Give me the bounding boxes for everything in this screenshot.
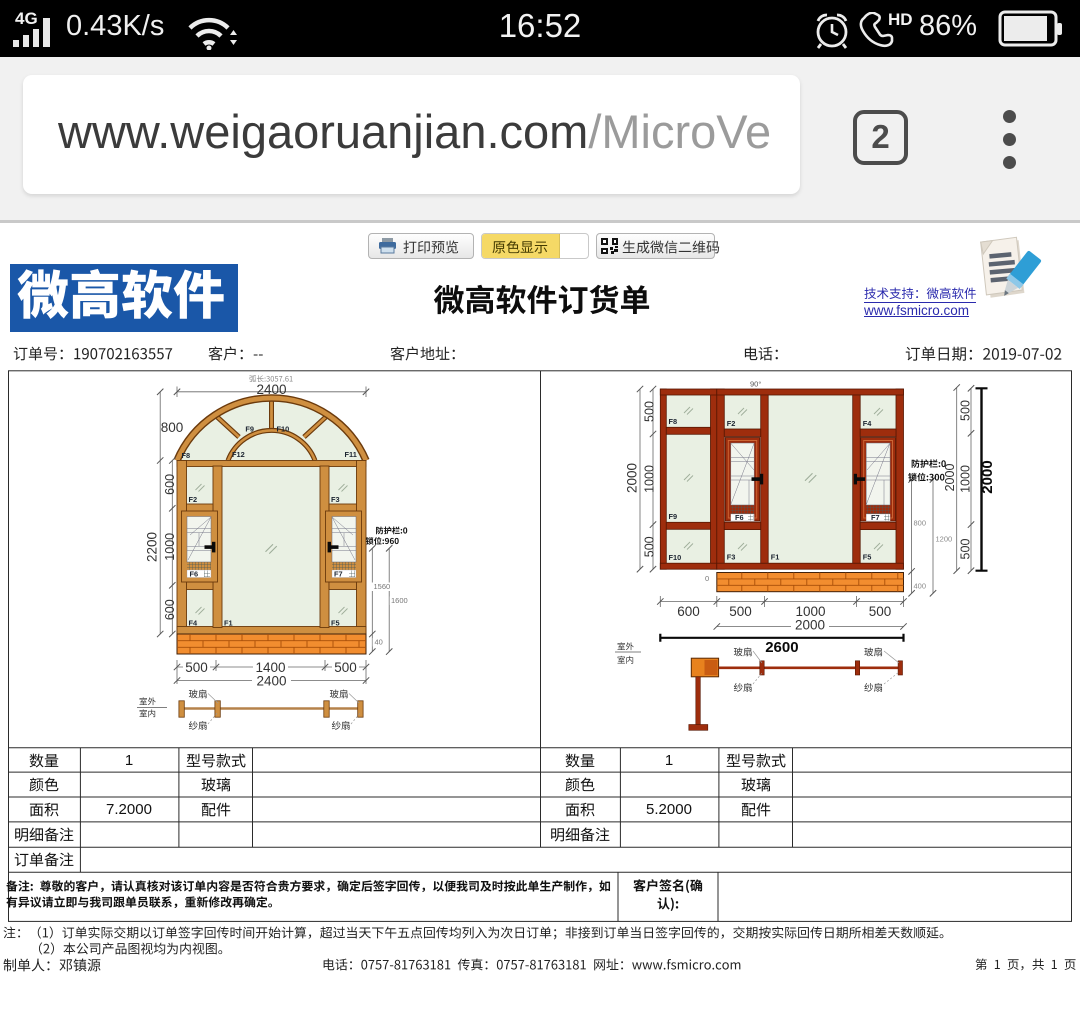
svg-text:F5: F5 bbox=[331, 619, 340, 628]
svg-text:600: 600 bbox=[163, 599, 177, 620]
svg-text:F1: F1 bbox=[771, 553, 780, 562]
svg-text:2000: 2000 bbox=[795, 618, 825, 633]
svg-text:800: 800 bbox=[914, 519, 927, 528]
svg-text:F7: F7 bbox=[334, 569, 343, 578]
svg-text:800: 800 bbox=[161, 420, 184, 435]
svg-text:F2: F2 bbox=[727, 419, 736, 428]
svg-text:1560: 1560 bbox=[374, 582, 391, 591]
svg-text:F11: F11 bbox=[345, 450, 357, 459]
svg-text:F8: F8 bbox=[182, 451, 191, 460]
svg-text:F3: F3 bbox=[727, 553, 736, 562]
svg-text:500: 500 bbox=[643, 401, 657, 422]
svg-text:2400: 2400 bbox=[256, 674, 286, 689]
svg-text:F10: F10 bbox=[669, 553, 682, 562]
svg-text:500: 500 bbox=[729, 604, 752, 619]
svg-text:0: 0 bbox=[705, 574, 709, 583]
svg-text:2000: 2000 bbox=[625, 463, 640, 493]
svg-text:F12: F12 bbox=[232, 450, 245, 459]
svg-text:500: 500 bbox=[959, 539, 973, 560]
svg-text:40: 40 bbox=[375, 638, 383, 647]
svg-text:1600: 1600 bbox=[391, 596, 408, 605]
svg-text:F7: F7 bbox=[871, 513, 880, 522]
svg-text:2600: 2600 bbox=[765, 639, 798, 656]
svg-text:400: 400 bbox=[914, 582, 927, 591]
svg-text:F4: F4 bbox=[863, 419, 873, 428]
svg-text:F5: F5 bbox=[863, 553, 872, 562]
svg-text:1200: 1200 bbox=[936, 535, 953, 544]
svg-text:500: 500 bbox=[185, 660, 208, 675]
svg-text:2000: 2000 bbox=[943, 464, 957, 492]
svg-text:F10: F10 bbox=[277, 425, 290, 434]
svg-text:1000: 1000 bbox=[959, 465, 973, 493]
svg-text:F9: F9 bbox=[669, 512, 678, 521]
svg-text:600: 600 bbox=[163, 474, 177, 495]
svg-text:90°: 90° bbox=[750, 380, 761, 389]
svg-text:F6: F6 bbox=[190, 569, 199, 578]
svg-text:F1: F1 bbox=[224, 619, 233, 628]
svg-text:500: 500 bbox=[869, 604, 892, 619]
svg-text:500: 500 bbox=[334, 660, 357, 675]
svg-text:F9: F9 bbox=[245, 425, 254, 434]
svg-text:F2: F2 bbox=[189, 495, 198, 504]
svg-text:F4: F4 bbox=[189, 619, 199, 628]
svg-text:600: 600 bbox=[677, 604, 700, 619]
svg-text:1000: 1000 bbox=[643, 465, 657, 493]
svg-text:F6: F6 bbox=[735, 513, 744, 522]
svg-text:2400: 2400 bbox=[256, 382, 286, 397]
svg-text:F8: F8 bbox=[669, 417, 678, 426]
svg-text:2200: 2200 bbox=[145, 532, 160, 562]
svg-text:500: 500 bbox=[643, 536, 657, 557]
svg-text:500: 500 bbox=[959, 400, 973, 421]
svg-text:F3: F3 bbox=[331, 495, 340, 504]
svg-text:1000: 1000 bbox=[163, 533, 177, 561]
svg-text:2000: 2000 bbox=[979, 460, 996, 493]
